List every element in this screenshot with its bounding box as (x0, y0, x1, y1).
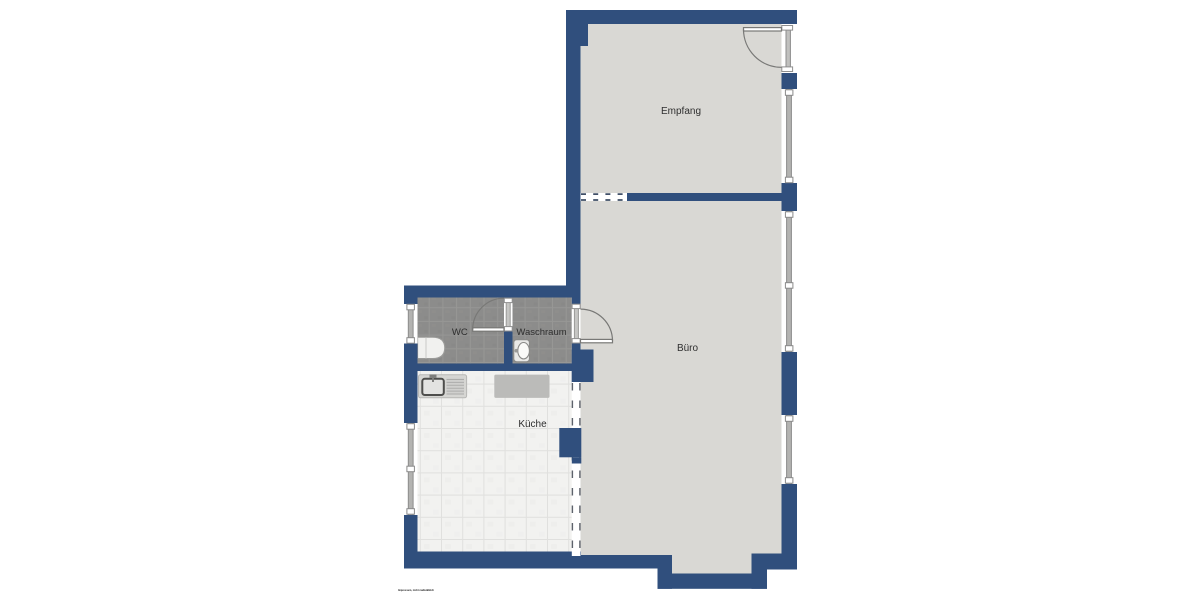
svg-text:Empfang: Empfang (661, 106, 701, 117)
svg-text:Waschraum: Waschraum (516, 327, 566, 338)
svg-text:WC: WC (452, 327, 468, 338)
svg-text:Büro: Büro (677, 343, 699, 354)
svg-text:Küche: Küche (518, 419, 547, 430)
svg-text:Impressum, nicht maßstäblich: Impressum, nicht maßstäblich (398, 589, 434, 592)
